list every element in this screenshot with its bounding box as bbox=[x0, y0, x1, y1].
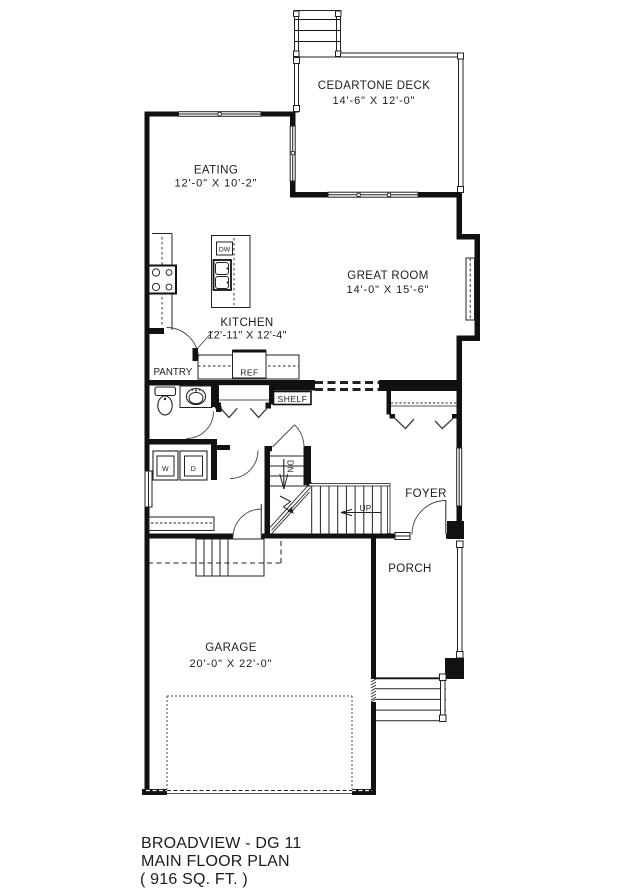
svg-text:EATING: EATING bbox=[194, 165, 238, 177]
svg-text:FOYER: FOYER bbox=[405, 488, 447, 500]
svg-text:W: W bbox=[162, 466, 169, 473]
svg-text:GREAT ROOM: GREAT ROOM bbox=[347, 270, 429, 282]
svg-text:BROADVIEW - DG 11: BROADVIEW - DG 11 bbox=[141, 835, 301, 852]
svg-text:MAIN FLOOR PLAN: MAIN FLOOR PLAN bbox=[141, 853, 290, 870]
svg-text:14'-6" X 12'-0": 14'-6" X 12'-0" bbox=[333, 95, 416, 107]
svg-text:PANTRY: PANTRY bbox=[154, 367, 193, 378]
svg-text:( 916 SQ. FT. ): ( 916 SQ. FT. ) bbox=[140, 871, 248, 888]
svg-text:20'-0" X 22'-0": 20'-0" X 22'-0" bbox=[190, 658, 273, 670]
svg-text:PORCH: PORCH bbox=[388, 563, 432, 575]
svg-text:GARAGE: GARAGE bbox=[205, 642, 257, 654]
svg-text:12'-0" X 10'-2": 12'-0" X 10'-2" bbox=[175, 178, 258, 190]
svg-text:SHELF: SHELF bbox=[278, 394, 308, 404]
svg-text:REF: REF bbox=[240, 368, 259, 378]
svg-text:D: D bbox=[191, 466, 197, 473]
svg-text:DW: DW bbox=[219, 247, 231, 254]
svg-text:KITCHEN: KITCHEN bbox=[220, 317, 273, 329]
svg-text:14'-0" X 15'-6": 14'-0" X 15'-6" bbox=[347, 284, 430, 296]
svg-text:CEDARTONE DECK: CEDARTONE DECK bbox=[318, 80, 431, 92]
svg-text:12'-11" X 12'-4": 12'-11" X 12'-4" bbox=[207, 330, 287, 342]
svg-text:UP: UP bbox=[360, 504, 372, 513]
svg-text:DN: DN bbox=[286, 460, 295, 474]
